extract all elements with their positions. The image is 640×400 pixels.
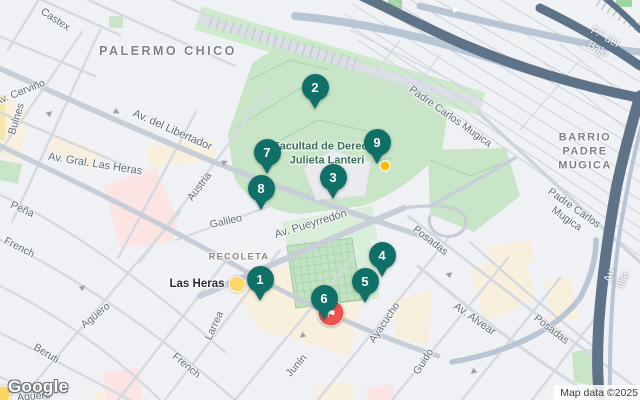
las-heras-station-icon[interactable] (229, 276, 246, 293)
map-canvas[interactable]: CastexAv. CerviñoBulnesAv. del Libertado… (0, 0, 640, 400)
numbered-map-pin[interactable]: 4 (369, 242, 396, 269)
attribution-text: Map data ©2025 (560, 387, 638, 399)
numbered-map-pin[interactable]: 3 (320, 164, 347, 191)
numbered-map-pin[interactable]: 6 (311, 285, 338, 312)
one-way-arrow-icon (453, 7, 460, 14)
numbered-map-pin[interactable]: 2 (302, 74, 329, 101)
numbered-map-pin[interactable]: 7 (254, 139, 281, 166)
numbered-map-pin[interactable]: 5 (352, 268, 379, 295)
map-attribution: Map data ©2025 (554, 385, 640, 400)
google-logo[interactable]: Google (8, 377, 68, 397)
numbered-map-pin[interactable]: 1 (247, 266, 274, 293)
numbered-map-pin[interactable]: 9 (364, 129, 391, 156)
map-base-art (0, 0, 640, 400)
